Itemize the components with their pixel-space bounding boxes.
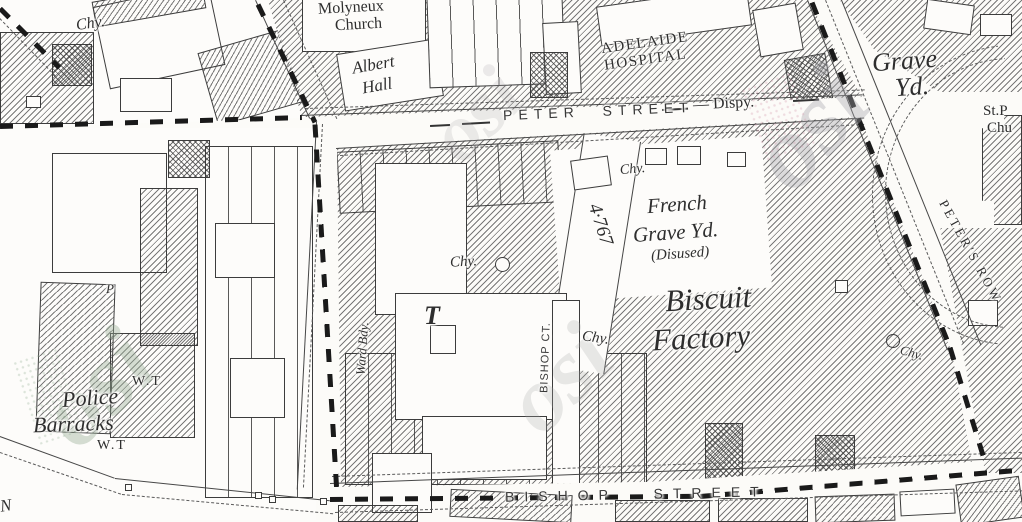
- label-n-mark: N: [0, 496, 12, 514]
- building: [752, 3, 804, 58]
- label-dispy: — Dispy.: [693, 94, 755, 113]
- building: [955, 476, 1022, 522]
- label-french-grave-yard: Grave Yd.: [632, 219, 718, 246]
- building: [140, 188, 198, 346]
- yard: [215, 223, 275, 278]
- gate-post: [125, 484, 132, 491]
- yard: [230, 358, 285, 418]
- block-police-barracks: [0, 128, 316, 520]
- label-molyneux-church: Church: [335, 16, 383, 34]
- label-st-peters-church: St.P: [983, 104, 1008, 119]
- mereing-dash: [462, 122, 490, 125]
- label-t-mark: T: [424, 303, 440, 329]
- building-crossbraced: [705, 423, 743, 479]
- building: [718, 498, 808, 522]
- building: [727, 152, 746, 167]
- label-grave-yard: Yd.: [894, 73, 930, 101]
- label-water-tank: W.T: [132, 375, 162, 389]
- housing-row: [205, 146, 313, 498]
- building-crossbraced: [168, 140, 210, 178]
- map-canvas[interactable]: osi osi osi osi Chy. Molyneux Church Alb…: [0, 0, 1022, 522]
- building: [835, 280, 848, 293]
- building-crossbraced: [530, 52, 568, 98]
- building: [338, 505, 418, 522]
- label-p-mark: P: [106, 282, 114, 295]
- building: [923, 0, 975, 35]
- label-police-barracks: Barracks: [33, 412, 114, 437]
- mereing-dash: [430, 124, 450, 127]
- label-french-grave-yard: French: [646, 192, 707, 217]
- label-police-barracks: Police: [61, 385, 119, 411]
- label-chimney: Chy.: [450, 254, 478, 270]
- label-biscuit-factory: Factory: [651, 319, 751, 355]
- label-st-peters-church: Chu: [987, 121, 1012, 136]
- building: [980, 14, 1012, 36]
- building: [677, 146, 701, 165]
- corner-house: [372, 453, 432, 513]
- label-biscuit-factory: Biscuit: [664, 281, 752, 316]
- gate-post: [320, 498, 327, 505]
- chimney-circle: [495, 257, 510, 272]
- label-chimney: Chy.: [619, 162, 645, 178]
- bishop-court-passage: [552, 300, 580, 486]
- boundary-line: [313, 124, 340, 491]
- building: [815, 494, 896, 522]
- gate-post: [255, 492, 262, 499]
- chimney-circle: [886, 334, 900, 348]
- gate-post: [269, 496, 276, 503]
- building: [26, 96, 41, 108]
- building: [120, 78, 172, 112]
- building: [645, 148, 667, 165]
- label-water-tank: W.T: [97, 439, 127, 453]
